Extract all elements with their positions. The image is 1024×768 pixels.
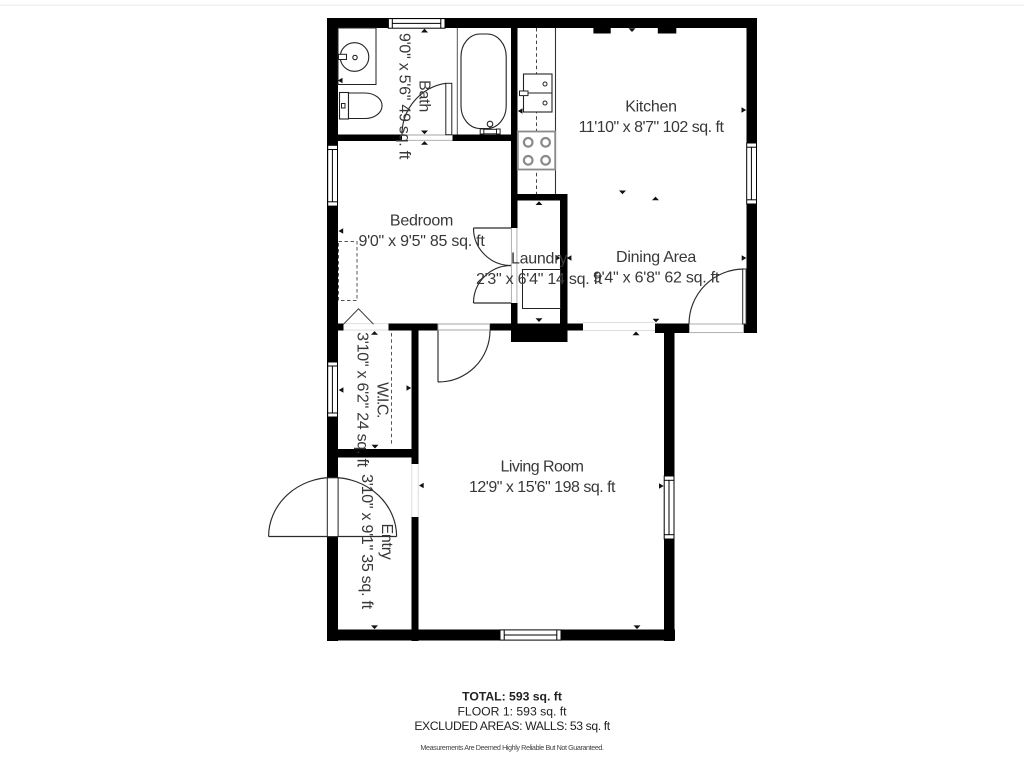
svg-text:Kitchen: Kitchen	[625, 99, 677, 116]
svg-text:9'0" x 9'5" 85 sq. ft: 9'0" x 9'5" 85 sq. ft	[358, 233, 485, 250]
svg-text:Laundry: Laundry	[511, 251, 567, 268]
svg-text:Entry: Entry	[378, 523, 395, 559]
svg-text:9'0" x 5'6" 49 sq. ft: 9'0" x 5'6" 49 sq. ft	[396, 33, 413, 160]
svg-text:Measurements Are Deemed Highly: Measurements Are Deemed Highly Reliable …	[420, 743, 604, 752]
svg-text:W.I.C.: W.I.C.	[373, 382, 390, 417]
svg-text:9'4" x 6'8" 62 sq. ft: 9'4" x 6'8" 62 sq. ft	[593, 270, 720, 287]
svg-text:12'9" x 15'6" 198 sq. ft: 12'9" x 15'6" 198 sq. ft	[469, 479, 616, 496]
svg-text:3'10" x 9'1" 35 sq. ft: 3'10" x 9'1" 35 sq. ft	[358, 474, 375, 610]
svg-text:Dining Area: Dining Area	[616, 249, 696, 266]
svg-text:2'3" x 6'4" 14 sq. ft: 2'3" x 6'4" 14 sq. ft	[476, 271, 603, 288]
svg-text:11'10" x 8'7" 102 sq. ft: 11'10" x 8'7" 102 sq. ft	[579, 119, 725, 136]
svg-text:Living Room: Living Room	[501, 459, 584, 476]
svg-text:3'10" x 6'2" 24 sq. ft: 3'10" x 6'2" 24 sq. ft	[353, 332, 370, 468]
svg-text:Bath: Bath	[416, 80, 433, 112]
svg-text:EXCLUDED AREAS: WALLS: 53 sq.: EXCLUDED AREAS: WALLS: 53 sq. ft	[414, 719, 610, 733]
svg-text:FLOOR 1: 593 sq. ft: FLOOR 1: 593 sq. ft	[457, 705, 567, 719]
svg-text:TOTAL: 593 sq. ft: TOTAL: 593 sq. ft	[462, 690, 562, 704]
svg-text:Bedroom: Bedroom	[390, 213, 453, 230]
